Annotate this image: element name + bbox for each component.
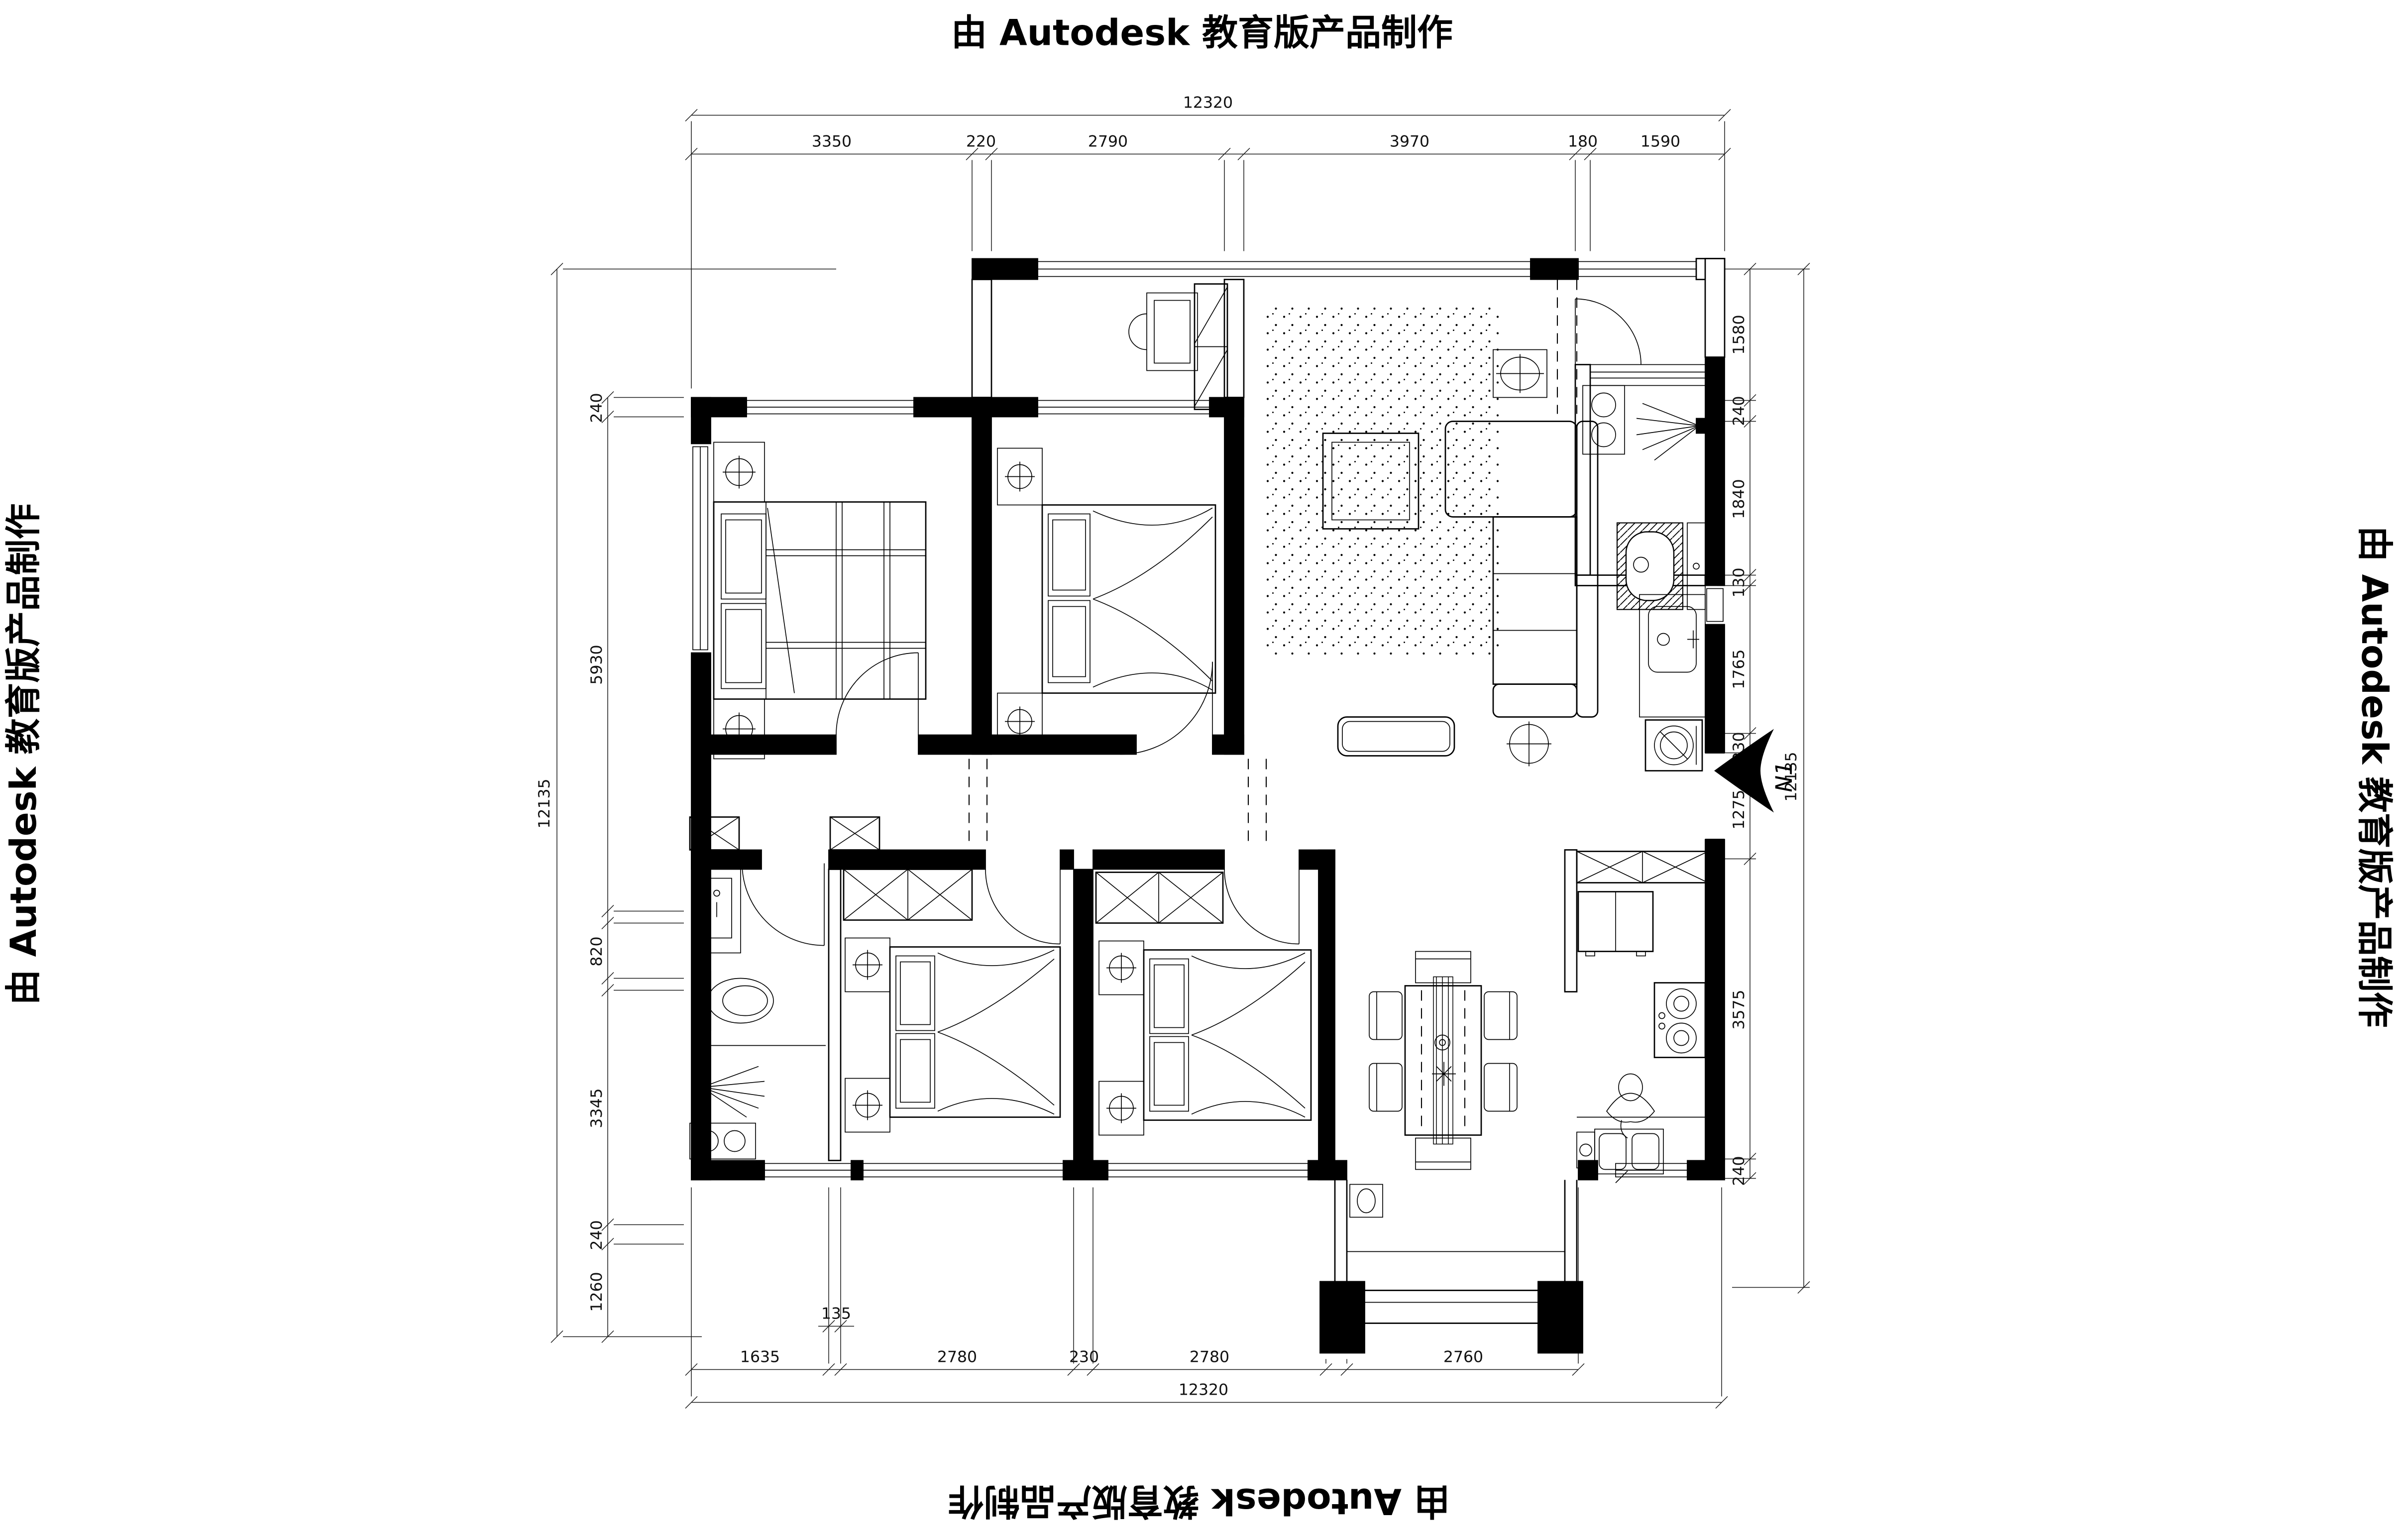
bedroom-3 bbox=[844, 870, 1060, 1132]
wall-master-east bbox=[972, 398, 991, 755]
cabinet-x bbox=[830, 817, 879, 850]
wall-dining-west bbox=[1318, 850, 1335, 1180]
bedroom-4 bbox=[1096, 873, 1311, 1135]
dim-right-2: 1840 bbox=[1730, 479, 1748, 519]
dim-bottom-1: 135 bbox=[821, 1305, 851, 1323]
utility-nook bbox=[1639, 595, 1705, 771]
chair bbox=[1129, 314, 1147, 350]
shelf bbox=[1590, 365, 1705, 386]
dim-bottom-4: 2780 bbox=[1190, 1348, 1229, 1366]
dim-left-4: 240 bbox=[588, 1220, 606, 1250]
bed-double bbox=[714, 502, 926, 699]
autodesk-stamp-top: 由 Autodesk 教育版产品制作 bbox=[951, 12, 1453, 54]
dim-left: 12135 240 5930 820 3345 240 1260 bbox=[536, 263, 836, 1343]
squat-toilet bbox=[1617, 523, 1683, 610]
wardrobe bbox=[844, 870, 972, 920]
chair bbox=[1369, 1064, 1402, 1111]
shower-icon bbox=[1637, 404, 1705, 460]
wall-top-right-pier bbox=[1530, 259, 1578, 280]
dim-left-total: 12135 bbox=[536, 778, 553, 828]
dim-top-2: 2790 bbox=[1088, 133, 1128, 151]
dim-top-1: 220 bbox=[966, 133, 996, 151]
dim-right-4: 1765 bbox=[1730, 649, 1748, 689]
wall-br3-br4 bbox=[1074, 870, 1093, 1161]
autodesk-stamp-left: 由 Autodesk 教育版产品制作 bbox=[2, 503, 44, 1005]
chair bbox=[1369, 992, 1402, 1040]
dim-right-3: 130 bbox=[1730, 567, 1748, 597]
bed-double bbox=[1144, 950, 1311, 1120]
table-runner bbox=[1433, 977, 1453, 1144]
dim-top-5: 1590 bbox=[1640, 133, 1680, 151]
entry-porch bbox=[1320, 1180, 1583, 1353]
bed-double bbox=[890, 947, 1060, 1117]
dim-right-8: 240 bbox=[1730, 1156, 1748, 1186]
wall-living-west bbox=[1224, 398, 1244, 755]
bed-double bbox=[1042, 505, 1215, 693]
cabinet-x bbox=[1577, 852, 1708, 883]
dim-left-1: 5930 bbox=[588, 645, 606, 684]
living-room bbox=[1262, 307, 1598, 767]
autodesk-stamp-right: 由 Autodesk 教育版产品制作 bbox=[2354, 526, 2396, 1027]
wall-cabinet bbox=[1578, 892, 1653, 956]
pendant-lamp-icon bbox=[1507, 722, 1551, 767]
wardrobe bbox=[1096, 873, 1223, 923]
dim-bottom-2: 2780 bbox=[937, 1348, 977, 1366]
kitchen bbox=[1577, 852, 1708, 1183]
porch-column bbox=[1320, 1282, 1365, 1353]
stamp-text-left: 由 Autodesk 教育版产品制作 bbox=[2, 503, 44, 1005]
dim-left-2: 820 bbox=[588, 936, 606, 966]
dim-bottom-total: 12320 bbox=[1179, 1381, 1228, 1399]
autodesk-stamp-bottom: 由 Autodesk 教育版产品制作 bbox=[948, 1481, 1450, 1523]
rug bbox=[1262, 307, 1501, 658]
stove bbox=[1654, 983, 1705, 1058]
wardrobe-study bbox=[1195, 284, 1227, 410]
dim-left-3: 3345 bbox=[588, 1088, 606, 1128]
porch-column bbox=[1538, 1282, 1583, 1353]
dim-left-0: 240 bbox=[588, 393, 606, 423]
dim-top-0: 3350 bbox=[812, 133, 852, 151]
wall-kitchen-west bbox=[1565, 850, 1577, 992]
hallway bbox=[690, 817, 879, 850]
wall-top-left-pier bbox=[972, 259, 1038, 280]
dim-top-3: 3970 bbox=[1390, 133, 1429, 151]
dim-right-0: 1580 bbox=[1730, 315, 1748, 354]
chair bbox=[1484, 992, 1517, 1040]
dim-bottom-0: 1635 bbox=[740, 1348, 780, 1366]
double-sink bbox=[1595, 1129, 1663, 1183]
dim-top: 12320 3350 220 2790 3970 180 1590 bbox=[685, 94, 1731, 389]
washing-machine bbox=[1645, 720, 1702, 771]
dining-table bbox=[1405, 977, 1481, 1144]
chair bbox=[1484, 1064, 1517, 1111]
bathroom-1 bbox=[1583, 365, 1705, 610]
ceiling-lamp-icon bbox=[1493, 350, 1547, 398]
dim-left-5: 1260 bbox=[588, 1272, 606, 1312]
dim-right-6: 1275 bbox=[1730, 789, 1748, 829]
wall-bath2-east bbox=[829, 870, 841, 1161]
cabinet bbox=[1687, 523, 1705, 610]
dim-top-total: 12320 bbox=[1183, 94, 1233, 112]
dim-bottom-5: 2760 bbox=[1443, 1348, 1483, 1366]
balcony-column bbox=[1705, 259, 1725, 357]
north-label: N1 bbox=[1771, 761, 1797, 792]
study-room bbox=[1129, 284, 1227, 410]
stamp-text-top: 由 Autodesk 教育版产品制作 bbox=[951, 12, 1453, 54]
tv-cabinet bbox=[1338, 717, 1454, 756]
floor-plan-drawing: 由 Autodesk 教育版产品制作 由 Autodesk 教育版产品制作 由 … bbox=[0, 0, 2404, 1540]
stamp-text-bottom: 由 Autodesk 教育版产品制作 bbox=[948, 1481, 1450, 1523]
porch-light bbox=[1350, 1185, 1383, 1217]
wall-study-west bbox=[972, 280, 991, 398]
bedroom-2 bbox=[997, 448, 1215, 750]
floor-plan-sheet: 由 Autodesk 教育版产品制作 由 Autodesk 教育版产品制作 由 … bbox=[0, 0, 2404, 1540]
stamp-text-right: 由 Autodesk 教育版产品制作 bbox=[2354, 526, 2396, 1027]
dining-area bbox=[1369, 952, 1517, 1170]
master-bedroom bbox=[714, 442, 926, 759]
person-figure bbox=[1607, 1074, 1654, 1138]
dim-top-4: 180 bbox=[1568, 133, 1598, 151]
vanity-counter bbox=[1639, 595, 1705, 717]
dim-right-7: 3575 bbox=[1730, 990, 1748, 1029]
window-bath-right bbox=[1707, 589, 1723, 622]
